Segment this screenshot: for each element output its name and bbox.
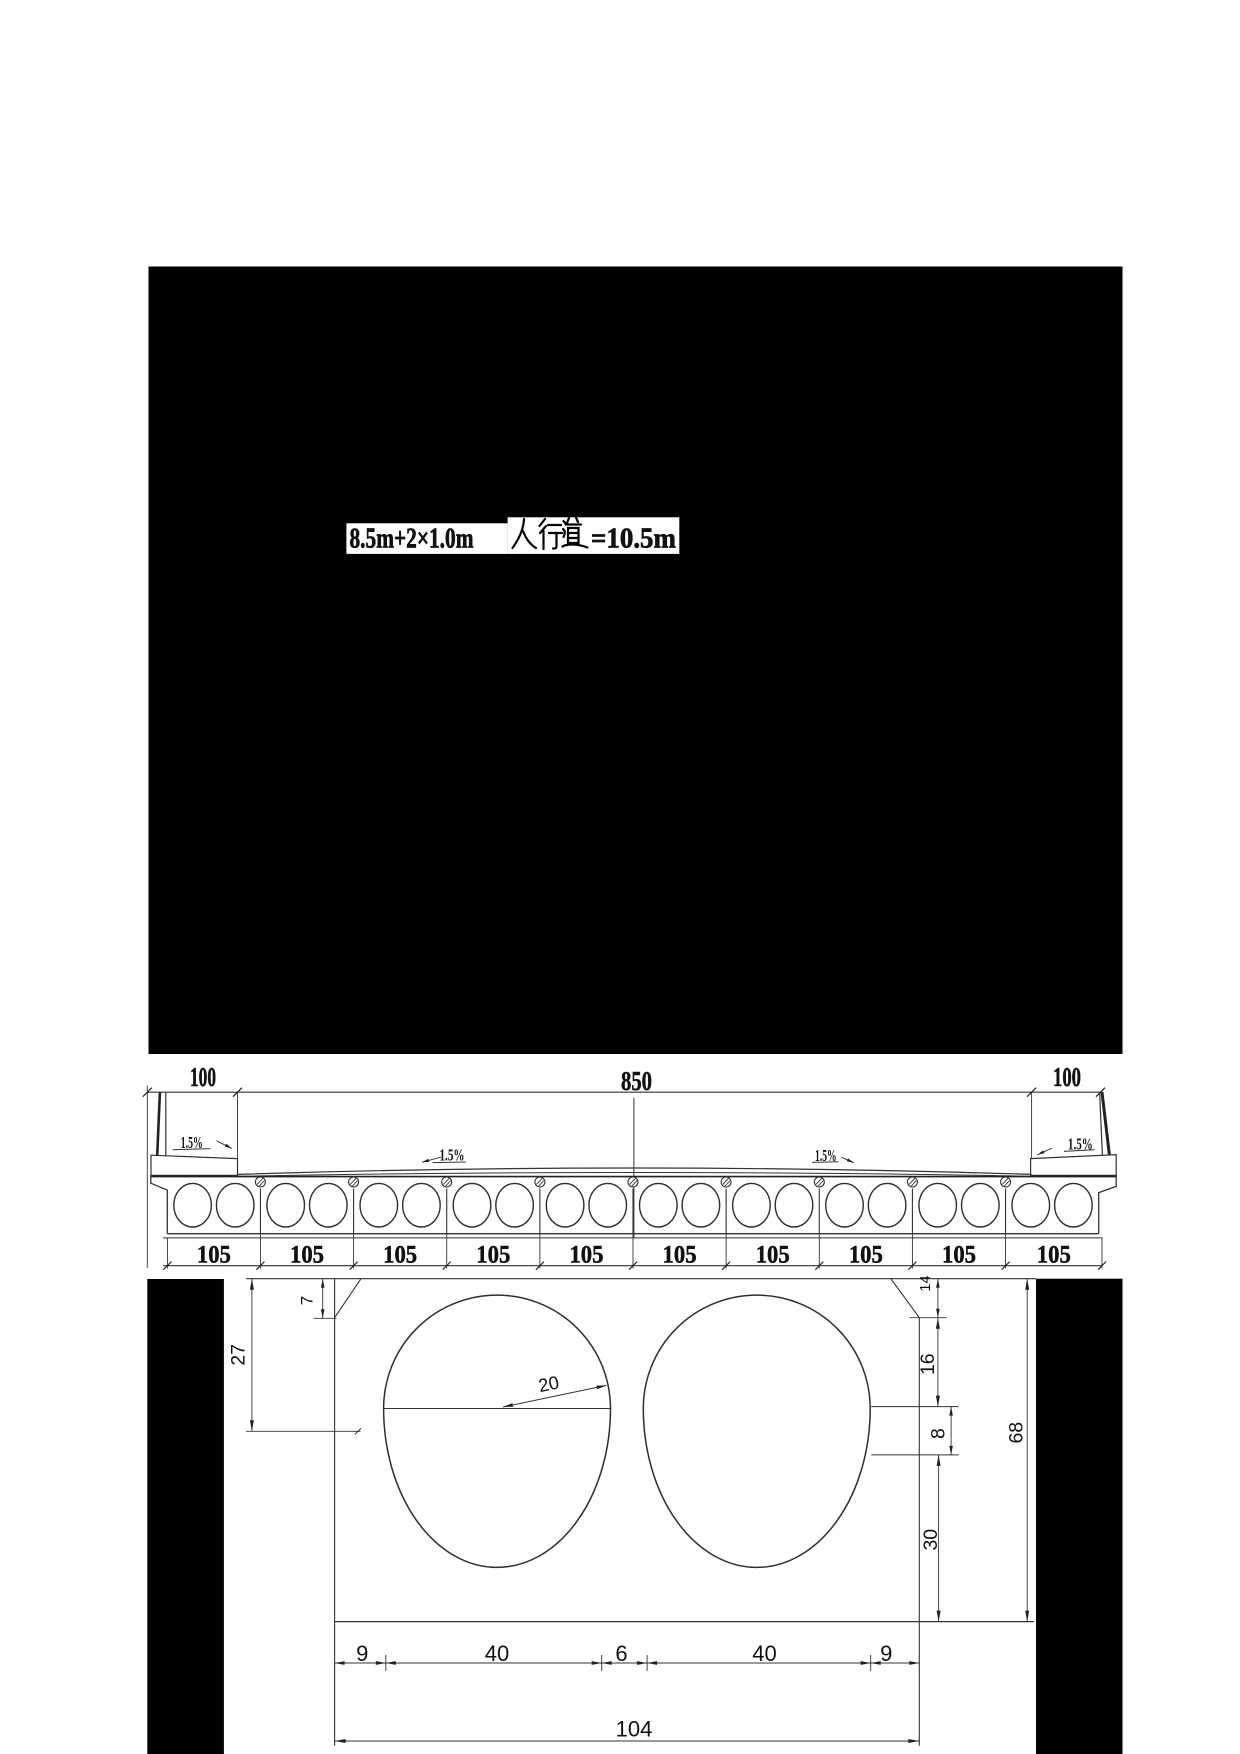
svg-text:68: 68 bbox=[1006, 1422, 1028, 1444]
svg-text:105: 105 bbox=[849, 1242, 883, 1269]
svg-text:105: 105 bbox=[1037, 1242, 1071, 1269]
svg-text:105: 105 bbox=[383, 1242, 417, 1269]
svg-text:9: 9 bbox=[356, 1641, 368, 1666]
svg-text:105: 105 bbox=[569, 1242, 603, 1269]
svg-text:105: 105 bbox=[290, 1242, 324, 1269]
svg-text:27: 27 bbox=[228, 1344, 250, 1366]
svg-text:6: 6 bbox=[615, 1641, 627, 1666]
svg-text:20: 20 bbox=[536, 1371, 560, 1396]
svg-text:105: 105 bbox=[756, 1242, 790, 1269]
svg-text:7: 7 bbox=[297, 1296, 316, 1305]
svg-text:16: 16 bbox=[917, 1353, 939, 1375]
svg-text:100: 100 bbox=[1053, 1062, 1081, 1092]
svg-text:14: 14 bbox=[918, 1275, 934, 1291]
svg-text:=10.5m: =10.5m bbox=[591, 523, 676, 555]
svg-text:105: 105 bbox=[476, 1242, 510, 1269]
svg-text:8.5m+2×1.0m: 8.5m+2×1.0m bbox=[350, 523, 474, 555]
svg-text:105: 105 bbox=[942, 1242, 976, 1269]
svg-text:104: 104 bbox=[616, 1717, 653, 1742]
svg-text:40: 40 bbox=[485, 1641, 509, 1666]
svg-text:40: 40 bbox=[752, 1641, 776, 1666]
svg-text:8: 8 bbox=[928, 1428, 950, 1439]
svg-text:105: 105 bbox=[663, 1242, 697, 1269]
svg-text:105: 105 bbox=[197, 1242, 231, 1269]
svg-text:850: 850 bbox=[621, 1066, 652, 1096]
svg-text:30: 30 bbox=[920, 1529, 942, 1551]
svg-text:9: 9 bbox=[880, 1641, 892, 1666]
svg-text:100: 100 bbox=[190, 1062, 216, 1092]
